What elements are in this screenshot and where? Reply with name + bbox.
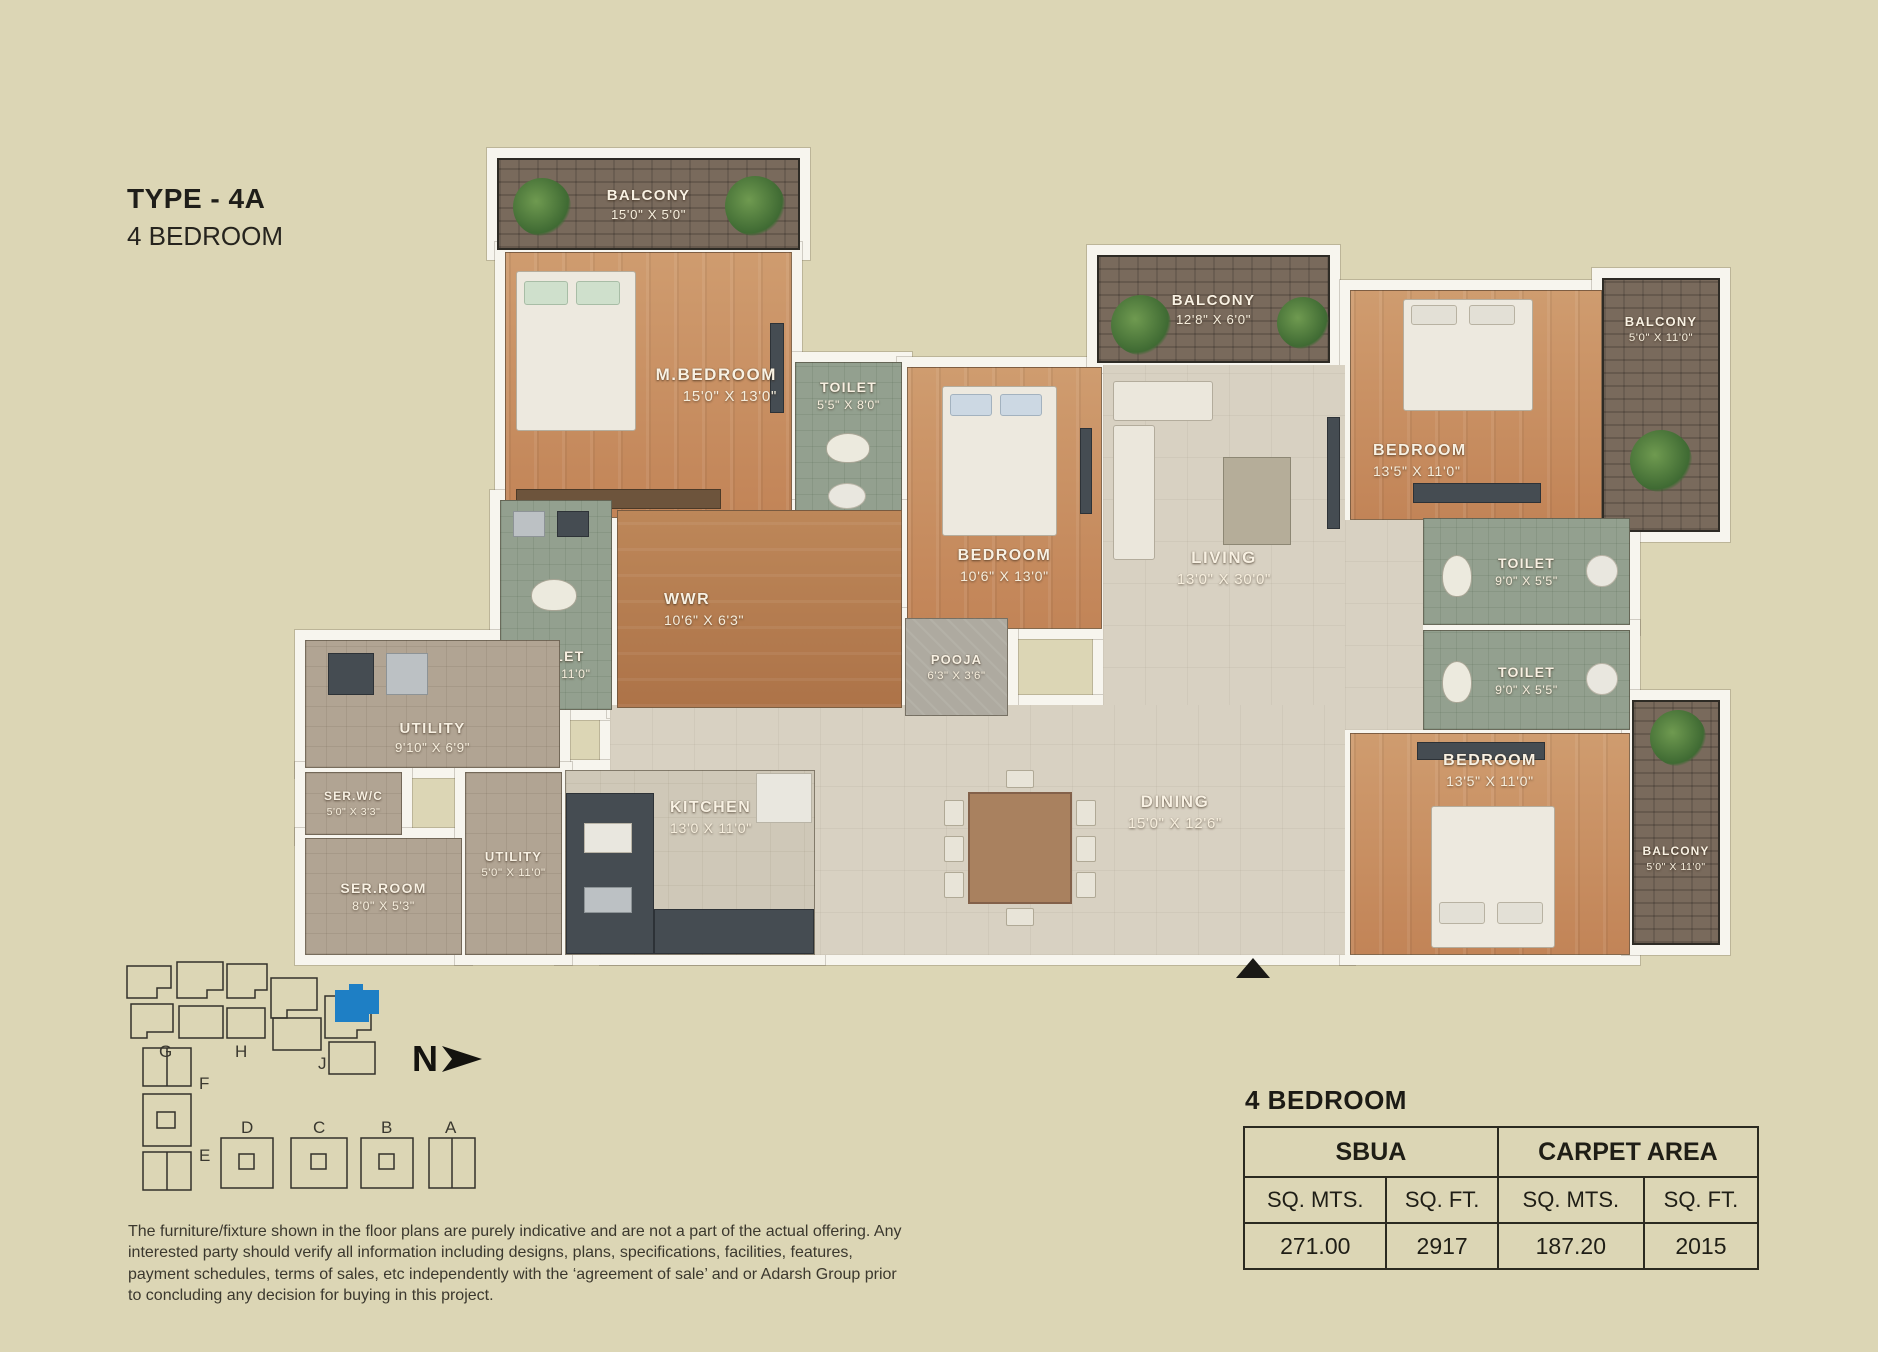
key-plan-label-d: D (241, 1118, 253, 1138)
pillow-icon (1411, 305, 1457, 325)
room-name: WWR (664, 591, 710, 609)
room-name: DINING (1141, 792, 1210, 812)
key-plan-label-a: A (445, 1118, 456, 1138)
room-name: UTILITY (485, 849, 542, 864)
room-utility-1: UTILITY 9'10" X 6'9" (305, 640, 560, 768)
room-wwr: WWR 10'6" X 6'3" (617, 510, 902, 708)
area-table: SBUA CARPET AREA SQ. MTS. SQ. FT. SQ. MT… (1243, 1126, 1759, 1270)
carpet-area-header: CARPET AREA (1498, 1127, 1758, 1177)
room-dims: 5'5" X 8'0" (817, 398, 880, 412)
plant-icon (1650, 710, 1706, 766)
entrance-marker-icon (1236, 958, 1270, 978)
pillow-icon (1000, 394, 1042, 416)
room-name: POOJA (931, 652, 982, 667)
room-dims: 8'0" X 5'3" (352, 899, 415, 913)
wash-sink-icon (386, 653, 428, 695)
bedroom-passage-floor-area (1345, 520, 1423, 730)
sink-icon (513, 511, 545, 537)
room-dims: 13'0 X 11'0" (670, 820, 752, 836)
key-plan-label-e: E (199, 1146, 210, 1166)
room-name: UTILITY (399, 720, 465, 737)
room-name: TOILET (1498, 664, 1555, 680)
sbua-header: SBUA (1244, 1127, 1498, 1177)
room-toilet-3: TOILET 9'0" X 5'5" (1423, 518, 1630, 625)
plant-icon (513, 178, 571, 236)
room-dims: 9'10" X 6'9" (395, 740, 470, 755)
room-dims: 10'6" X 13'0" (960, 568, 1049, 584)
room-dims: 15'0" X 5'0" (611, 207, 686, 222)
room-dims: 9'0" X 5'5" (1495, 683, 1558, 697)
key-plan-label-c: C (313, 1118, 325, 1138)
bed-icon (1431, 806, 1555, 948)
carpet-sqft-value: 2015 (1644, 1223, 1758, 1269)
room-name: BEDROOM (958, 547, 1052, 565)
floorplan-brochure-page: { "title": { "line1": "TYPE - 4A", "line… (0, 0, 1878, 1352)
plant-icon (1277, 297, 1329, 349)
key-plan-label-j: J (318, 1054, 327, 1074)
pillow-icon (1497, 902, 1543, 924)
pillow-icon (1469, 305, 1515, 325)
key-plan-label-f: F (199, 1074, 209, 1094)
plant-icon (1111, 295, 1171, 355)
room-servant-wc: SER.W/C 5'0" X 3'3" (305, 772, 402, 835)
kitchen-counter-icon (566, 793, 654, 954)
chair-icon (944, 872, 964, 898)
room-name: BALCONY (1172, 292, 1256, 309)
room-name: LIVING (1191, 548, 1257, 568)
room-utility-2: UTILITY 5'0" X 11'0" (465, 772, 562, 955)
sink-icon (828, 483, 866, 509)
area-summary: 4 BEDROOM SBUA CARPET AREA SQ. MTS. SQ. … (1243, 1085, 1759, 1270)
chair-icon (1076, 872, 1096, 898)
room-dims: 6'3" X 3'6" (927, 670, 985, 682)
room-dims: 9'0" X 5'5" (1495, 574, 1558, 588)
room-name: BALCONY (1643, 844, 1710, 858)
room-dims: 10'6" X 6'3" (664, 612, 744, 628)
plant-icon (725, 176, 785, 236)
room-bedroom-2: BEDROOM 10'6" X 13'0" (907, 367, 1102, 629)
room-dims: 15'0" X 12'6" (1128, 815, 1222, 832)
summary-heading: 4 BEDROOM (1245, 1085, 1759, 1116)
key-plan-label-b: B (381, 1118, 392, 1138)
tv-unit-icon (1080, 428, 1092, 514)
room-dims: 5'0" X 11'0" (1629, 332, 1693, 344)
room-name: TOILET (820, 379, 877, 395)
key-plan-label-g: G (159, 1042, 172, 1062)
room-name: BEDROOM (1373, 442, 1467, 460)
pillow-icon (950, 394, 992, 416)
room-toilet-master: TOILET 5'5" X 8'0" (795, 362, 902, 528)
chair-icon (1076, 800, 1096, 826)
sbua-sqmts-header: SQ. MTS. (1244, 1177, 1386, 1223)
carpet-sqmts-header: SQ. MTS. (1498, 1177, 1644, 1223)
disclaimer-text: The furniture/fixture shown in the floor… (128, 1221, 906, 1307)
fridge-icon (756, 773, 812, 823)
sink-icon (1586, 663, 1618, 695)
room-name: SER.ROOM (340, 880, 426, 896)
coffee-table-icon (1223, 457, 1291, 545)
carpet-sqft-header: SQ. FT. (1644, 1177, 1758, 1223)
chair-icon (944, 836, 964, 862)
room-dims: 12'8" X 6'0" (1176, 312, 1251, 327)
key-plan-label-h: H (235, 1042, 247, 1062)
sbua-sqmts-value: 271.00 (1244, 1223, 1386, 1269)
north-arrow: N (412, 1038, 482, 1080)
pillow-icon (1439, 902, 1485, 924)
wash-sink-icon (328, 653, 374, 695)
sofa-icon (1113, 381, 1213, 421)
chair-icon (1006, 908, 1034, 926)
room-dims: 15'0" X 13'0" (683, 388, 777, 405)
north-label: N (412, 1038, 438, 1080)
dining-table-icon (968, 792, 1072, 904)
carpet-sqmts-value: 187.20 (1498, 1223, 1644, 1269)
room-bedroom-4: BEDROOM 13'5" X 11'0" (1350, 733, 1630, 955)
toilet-icon (1442, 661, 1472, 703)
chair-icon (944, 800, 964, 826)
sbua-sqft-header: SQ. FT. (1386, 1177, 1497, 1223)
room-name: BALCONY (607, 187, 691, 204)
room-kitchen: KITCHEN 13'0 X 11'0" (565, 770, 815, 955)
room-name: KITCHEN (670, 799, 751, 817)
room-dims: 13'5" X 11'0" (1446, 773, 1534, 789)
room-bedroom-3: BEDROOM 13'5" X 11'0" (1350, 290, 1602, 520)
pillow-icon (576, 281, 620, 305)
pillow-icon (524, 281, 568, 305)
toilet-icon (1442, 555, 1472, 597)
room-dims: 13'0" X 30'0" (1177, 571, 1271, 588)
sink-icon (557, 511, 589, 537)
room-name: M.BEDROOM (656, 365, 777, 385)
room-balcony-bedroom-3: BALCONY 5'0" X 11'0" (1602, 278, 1720, 532)
room-dims: 5'0" X 11'0" (481, 867, 545, 879)
room-dims: 5'0" X 11'0" (1646, 861, 1705, 873)
hob-icon (584, 823, 632, 853)
room-dims: 5'0" X 3'3" (327, 806, 381, 818)
north-arrow-icon (442, 1045, 482, 1073)
plant-icon (1630, 430, 1692, 492)
room-balcony-top: BALCONY 15'0" X 5'0" (497, 158, 800, 250)
tv-unit-icon (1327, 417, 1340, 529)
key-plan-highlighted-unit (335, 984, 379, 1022)
toilet-icon (531, 579, 577, 611)
tv-unit-icon (1417, 742, 1545, 760)
room-servant-room: SER.ROOM 8'0" X 5'3" (305, 838, 462, 955)
tv-unit-icon (1413, 483, 1541, 503)
tv-unit-icon (770, 323, 784, 413)
chair-icon (1006, 770, 1034, 788)
kitchen-counter-icon (654, 909, 814, 954)
room-balcony-living: BALCONY 12'8" X 6'0" (1097, 255, 1330, 363)
room-pooja: POOJA 6'3" X 3'6" (905, 618, 1008, 716)
room-m-bedroom: M.BEDROOM 15'0" X 13'0" (505, 252, 792, 518)
sink-icon (1586, 555, 1618, 587)
room-balcony-bedroom-4: BALCONY 5'0" X 11'0" (1632, 700, 1720, 945)
room-name: TOILET (1498, 555, 1555, 571)
sbua-sqft-value: 2917 (1386, 1223, 1497, 1269)
room-name: BALCONY (1625, 314, 1697, 329)
toilet-icon (826, 433, 870, 463)
room-dims: 13'5" X 11'0" (1373, 463, 1461, 479)
room-name: SER.W/C (324, 789, 383, 803)
room-living: LIVING 13'0" X 30'0" (1103, 365, 1345, 710)
chair-icon (1076, 836, 1096, 862)
kitchen-sink-icon (584, 887, 632, 913)
room-toilet-4: TOILET 9'0" X 5'5" (1423, 630, 1630, 730)
sofa-icon (1113, 425, 1155, 560)
